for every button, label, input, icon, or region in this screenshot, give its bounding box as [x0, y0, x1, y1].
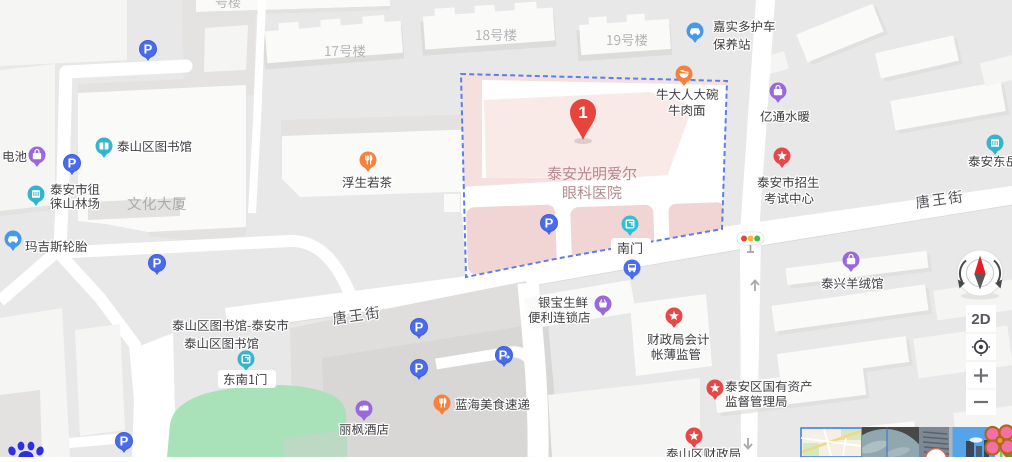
svg-text:P: P — [545, 216, 554, 231]
svg-text:P: P — [153, 256, 162, 271]
svg-text:P: P — [68, 156, 77, 171]
svg-text:P: P — [415, 320, 424, 335]
svg-text:1: 1 — [578, 103, 587, 122]
svg-text:2D: 2D — [971, 311, 990, 328]
svg-text:P: P — [144, 42, 153, 57]
svg-text:P: P — [120, 434, 129, 449]
svg-text:P: P — [415, 361, 424, 376]
svg-text:P: P — [499, 348, 508, 363]
